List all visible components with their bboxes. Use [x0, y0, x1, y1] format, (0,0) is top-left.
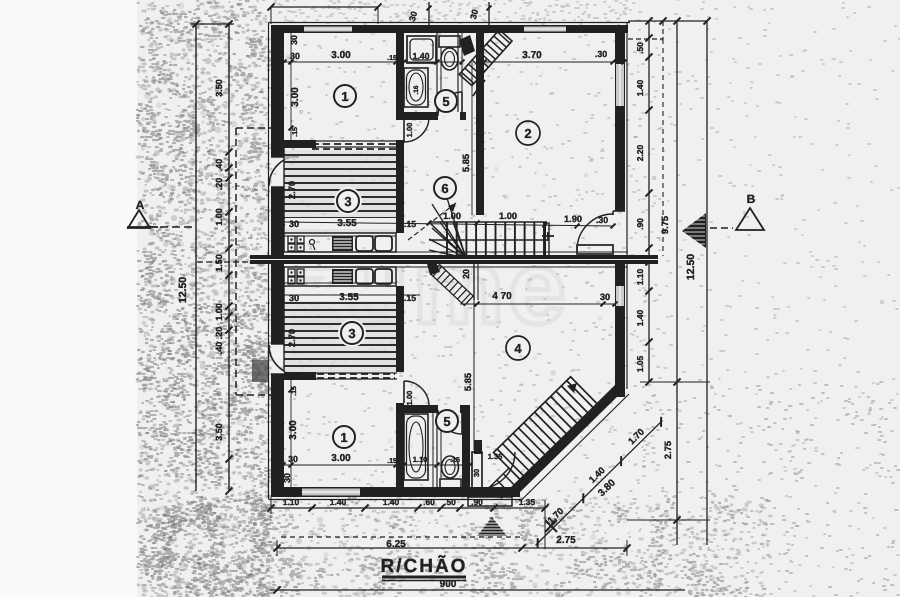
svg-text:3.00: 3.00	[331, 453, 351, 464]
svg-text:12.50: 12.50	[685, 254, 697, 280]
svg-text:3.00: 3.00	[331, 50, 351, 61]
svg-text:5.85: 5.85	[461, 154, 471, 172]
svg-text:30: 30	[289, 219, 299, 229]
svg-text:1.00: 1.00	[405, 391, 414, 406]
svg-text:1.10: 1.10	[635, 268, 645, 285]
svg-text:.60: .60	[423, 497, 435, 507]
svg-text:1.00: 1.00	[214, 208, 224, 226]
svg-text:.90: .90	[471, 497, 483, 507]
svg-text:1.00: 1.00	[405, 123, 414, 138]
svg-text:900: 900	[440, 579, 457, 590]
svg-text:.30: .30	[596, 215, 608, 225]
svg-text:4: 4	[514, 341, 522, 356]
svg-text:B: B	[747, 192, 756, 206]
svg-text:.40: .40	[214, 342, 224, 355]
svg-text:3: 3	[348, 326, 355, 341]
svg-text:12.50: 12.50	[177, 277, 189, 303]
svg-text:1.40: 1.40	[330, 497, 347, 507]
svg-text:.15: .15	[387, 55, 397, 62]
svg-text:1.10: 1.10	[283, 497, 300, 507]
svg-text:2.75: 2.75	[663, 441, 673, 459]
svg-text:3.00: 3.00	[288, 420, 299, 440]
svg-text:.20: .20	[214, 178, 224, 191]
svg-text:1.90: 1.90	[564, 214, 582, 224]
svg-text:.15: .15	[387, 458, 397, 465]
svg-text:30: 30	[290, 51, 300, 61]
svg-text:9.75: 9.75	[660, 216, 670, 234]
svg-text:1.05: 1.05	[635, 355, 645, 372]
svg-text:2.70: 2.70	[287, 329, 297, 347]
svg-text:3.55: 3.55	[337, 218, 357, 229]
svg-text:30: 30	[289, 293, 299, 303]
svg-text:3.00: 3.00	[290, 87, 301, 107]
svg-text:.90: .90	[635, 218, 645, 230]
svg-text:1.40: 1.40	[635, 309, 645, 326]
svg-text:.15: .15	[292, 127, 299, 137]
svg-text:30: 30	[472, 469, 481, 477]
svg-text:30: 30	[282, 473, 292, 483]
svg-text:.16: .16	[413, 85, 420, 94]
svg-text:1.40: 1.40	[383, 497, 400, 507]
svg-text:1.35: 1.35	[519, 497, 536, 507]
svg-text:1: 1	[341, 89, 348, 104]
svg-text:1.00: 1.00	[499, 211, 517, 221]
svg-text:A: A	[136, 198, 145, 212]
svg-text:.20: .20	[214, 327, 224, 340]
svg-text:2.75: 2.75	[556, 535, 576, 546]
svg-text:3.55: 3.55	[339, 292, 359, 303]
svg-text:5: 5	[442, 94, 449, 109]
svg-text:4 70: 4 70	[492, 291, 512, 302]
svg-text:1.00: 1.00	[214, 303, 224, 321]
svg-text:5.85: 5.85	[463, 373, 473, 391]
svg-text:20: 20	[461, 269, 471, 279]
svg-text:R/CHÃO: R/CHÃO	[381, 555, 468, 577]
svg-text:.50: .50	[635, 42, 645, 54]
svg-text:30: 30	[600, 292, 610, 302]
svg-text:.50: .50	[444, 497, 456, 507]
svg-text:1.40: 1.40	[635, 79, 645, 96]
svg-text:.15: .15	[291, 386, 298, 396]
svg-text:3.50: 3.50	[214, 423, 224, 441]
svg-text:.15: .15	[404, 293, 416, 303]
svg-text:5: 5	[443, 414, 450, 429]
svg-text:1: 1	[340, 430, 347, 445]
svg-text:.40: .40	[214, 159, 224, 172]
svg-text:2.70: 2.70	[287, 181, 297, 199]
svg-text:6: 6	[441, 181, 448, 196]
svg-text:3.50: 3.50	[214, 79, 224, 97]
svg-text:30: 30	[289, 35, 299, 45]
svg-text:3: 3	[344, 194, 351, 209]
svg-text:2: 2	[524, 126, 531, 141]
svg-text:2.20: 2.20	[635, 144, 645, 161]
svg-text:1.50: 1.50	[214, 254, 224, 272]
svg-text:3.70: 3.70	[522, 50, 542, 61]
svg-text:.30: .30	[595, 49, 607, 59]
